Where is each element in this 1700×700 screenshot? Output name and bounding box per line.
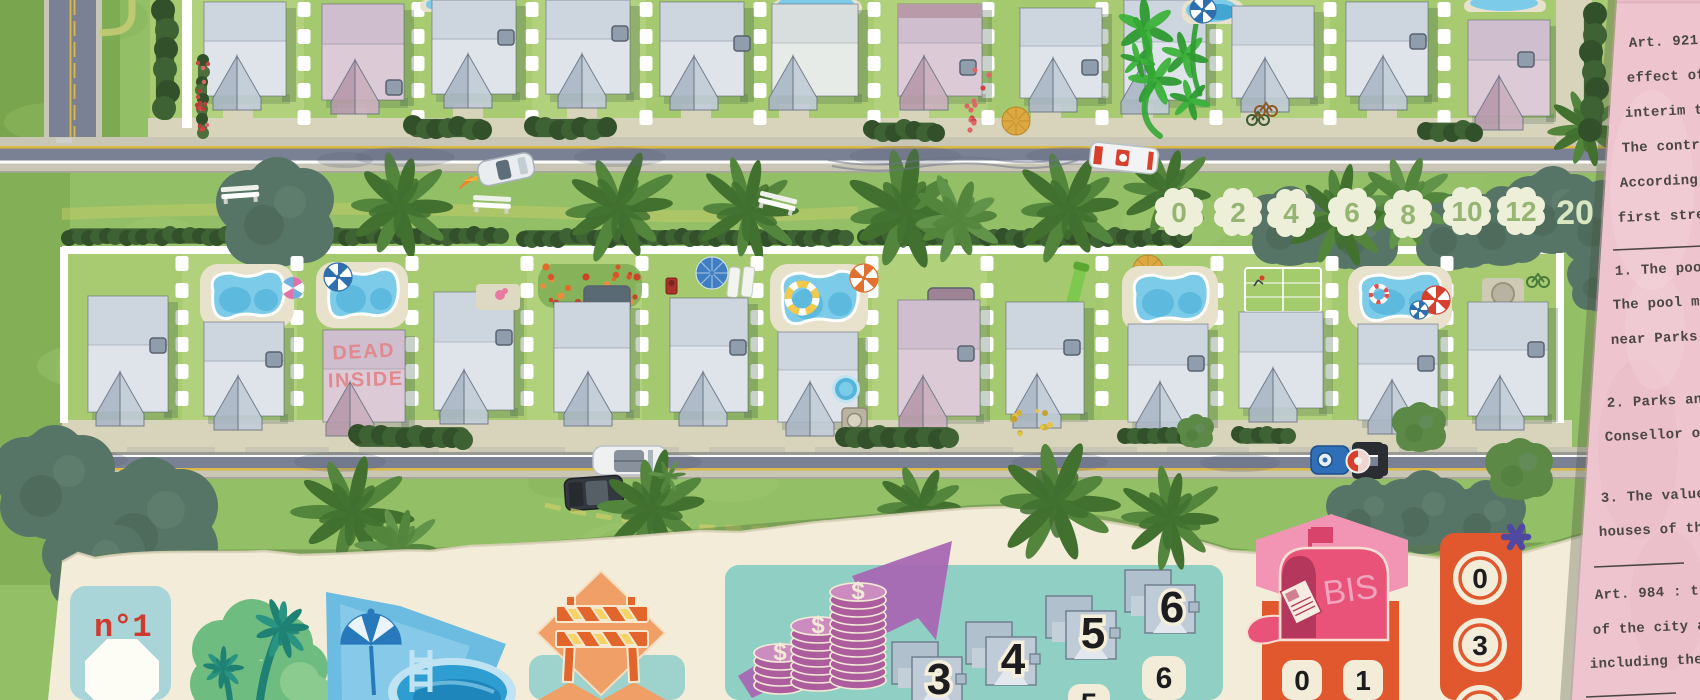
svg-text:8: 8 <box>1400 199 1416 230</box>
svg-text:6: 6 <box>1156 662 1173 695</box>
svg-text:INSIDE: INSIDE <box>328 368 404 393</box>
svg-text:6: 6 <box>1160 583 1184 632</box>
svg-text:DEAD: DEAD <box>332 339 396 364</box>
svg-text:2: 2 <box>1230 197 1246 228</box>
svg-text:6: 6 <box>1344 197 1360 228</box>
svg-text:BIS: BIS <box>1321 567 1381 612</box>
svg-text:$: $ <box>773 639 787 666</box>
svg-text:5: 5 <box>1081 688 1098 700</box>
svg-text:4: 4 <box>1001 635 1026 684</box>
svg-text:5: 5 <box>1081 609 1105 658</box>
svg-text:3: 3 <box>1472 630 1488 661</box>
svg-text:10: 10 <box>1451 196 1482 227</box>
svg-text:0: 0 <box>1294 665 1310 696</box>
svg-text:$: $ <box>811 612 825 639</box>
svg-text:0: 0 <box>1472 563 1488 594</box>
svg-text:20: 20 <box>1556 194 1594 232</box>
svg-text:0: 0 <box>1171 197 1187 228</box>
svg-text:3: 3 <box>927 655 951 700</box>
svg-text:$: $ <box>851 578 865 605</box>
svg-text:4: 4 <box>1283 198 1299 229</box>
svg-text:12: 12 <box>1505 196 1536 227</box>
svg-text:1: 1 <box>1355 665 1371 696</box>
